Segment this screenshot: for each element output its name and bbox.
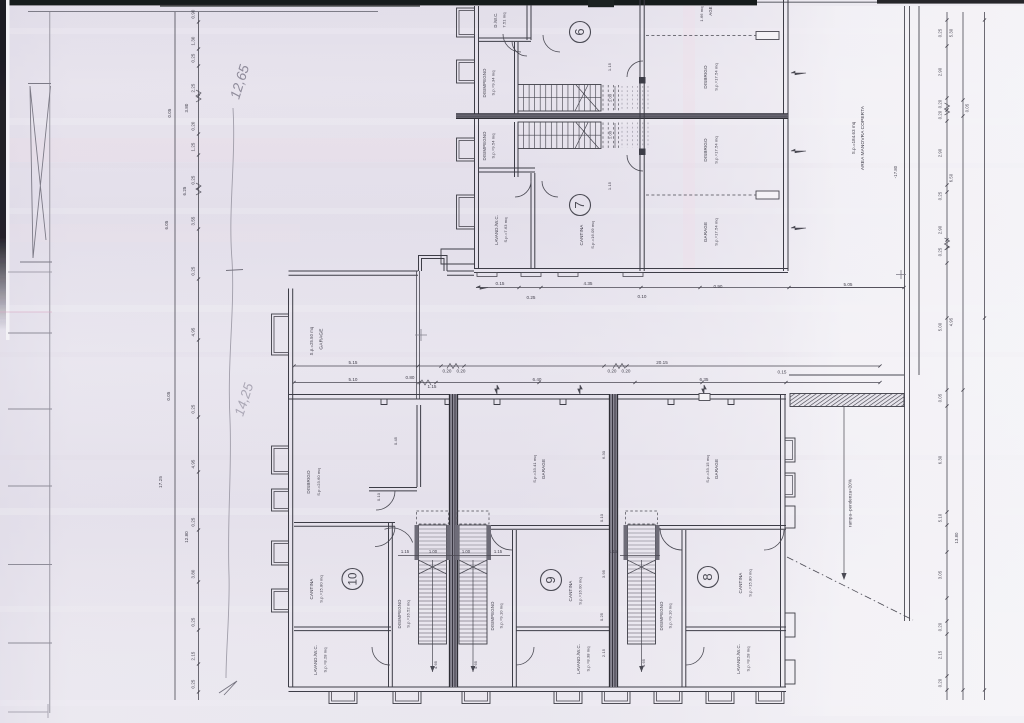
- svg-text:DISBRIGO: DISBRIGO: [703, 138, 708, 162]
- svg-text:5.05: 5.05: [844, 282, 853, 287]
- svg-text:0.05: 0.05: [167, 108, 172, 117]
- svg-text:0.20: 0.20: [622, 369, 631, 374]
- svg-text:0.25: 0.25: [191, 404, 196, 413]
- svg-text:3.80: 3.80: [191, 569, 196, 578]
- svg-text:rampa--pendenza<20%: rampa--pendenza<20%: [848, 479, 853, 527]
- svg-text:12.80: 12.80: [184, 531, 189, 543]
- svg-text:S.p.=15.80 mq: S.p.=15.80 mq: [319, 575, 324, 602]
- svg-text:0.25: 0.25: [938, 191, 943, 200]
- svg-text:6.50: 6.50: [949, 173, 954, 182]
- svg-text:S.p.=9.34 mq: S.p.=9.34 mq: [491, 70, 496, 95]
- svg-text:0.15: 0.15: [496, 281, 505, 286]
- svg-text:0.25: 0.25: [191, 266, 196, 275]
- svg-text:CANTINA: CANTINA: [738, 572, 743, 594]
- svg-text:1.00: 1.00: [608, 130, 613, 139]
- svg-text:4.95: 4.95: [191, 327, 196, 336]
- svg-text:1.00: 1.00: [608, 93, 613, 102]
- svg-text:LAVAND./W.C.: LAVAND./W.C.: [313, 645, 318, 675]
- svg-text:S.p.=8.28 mq: S.p.=8.28 mq: [746, 646, 751, 671]
- svg-text:13.80: 13.80: [954, 532, 959, 544]
- svg-text:S.p.=184.63 mq: S.p.=184.63 mq: [851, 121, 856, 154]
- svg-text:DISIMPEGNO: DISIMPEGNO: [397, 599, 402, 629]
- svg-text:DISIMPEGNO: DISIMPEGNO: [482, 68, 487, 98]
- svg-text:6.35: 6.35: [700, 377, 709, 382]
- svg-text:1.15: 1.15: [609, 549, 618, 554]
- svg-text:2.15: 2.15: [191, 651, 196, 660]
- svg-text:0.25: 0.25: [191, 679, 196, 688]
- svg-text:S.p.=17.54 mq: S.p.=17.54 mq: [714, 63, 719, 90]
- svg-text:5.15: 5.15: [349, 360, 358, 365]
- svg-text:17.25: 17.25: [158, 476, 163, 488]
- svg-text:0.15: 0.15: [778, 370, 787, 375]
- svg-text:4.65: 4.65: [641, 658, 646, 667]
- svg-text:DISIMPEGNO: DISIMPEGNO: [490, 601, 495, 631]
- svg-text:0.20: 0.20: [938, 622, 943, 631]
- svg-text:LAVAND./W.C.: LAVAND./W.C.: [736, 644, 741, 674]
- svg-text:AREA MANOVRA COPERTA: AREA MANOVRA COPERTA: [860, 105, 866, 170]
- svg-text:2.25: 2.25: [191, 83, 196, 92]
- svg-text:S.p.=23.60 mq: S.p.=23.60 mq: [316, 468, 321, 495]
- svg-text:1.15: 1.15: [607, 62, 612, 71]
- svg-text:3.55: 3.55: [191, 216, 196, 225]
- svg-text:4.95: 4.95: [191, 459, 196, 468]
- svg-text:20.15: 20.15: [656, 360, 668, 365]
- svg-text:0.25: 0.25: [191, 617, 196, 626]
- svg-text:DISIMPEGNO: DISIMPEGNO: [482, 131, 487, 161]
- svg-text:S.p.=7.63 mq: S.p.=7.63 mq: [503, 217, 508, 242]
- svg-text:0.05: 0.05: [938, 393, 943, 402]
- svg-text:0.25: 0.25: [599, 612, 604, 621]
- svg-text:D./W.C.: D./W.C.: [493, 12, 498, 27]
- svg-text:2.90: 2.90: [938, 225, 943, 234]
- svg-text:CANTINA: CANTINA: [309, 578, 314, 600]
- svg-text:5.10: 5.10: [349, 377, 358, 382]
- svg-text:0.05: 0.05: [965, 103, 970, 112]
- svg-text:0.90: 0.90: [191, 9, 196, 18]
- svg-text:3.05: 3.05: [938, 570, 943, 579]
- svg-text:2.15: 2.15: [938, 650, 943, 659]
- svg-text:S.p.=8.38 mq: S.p.=8.38 mq: [586, 646, 591, 671]
- svg-text:GARAGE: GARAGE: [703, 222, 708, 242]
- svg-text:S.p.=33.15 mq: S.p.=33.15 mq: [705, 455, 710, 482]
- svg-text:DISBRIGO: DISBRIGO: [703, 65, 708, 89]
- svg-text:LAVAND./W.C.: LAVAND./W.C.: [576, 644, 581, 674]
- svg-text:0.20: 0.20: [191, 121, 196, 130]
- svg-text:1.15: 1.15: [428, 384, 437, 389]
- svg-text:S.p.=15.80 mq: S.p.=15.80 mq: [748, 569, 753, 596]
- svg-text:10: 10: [348, 573, 360, 586]
- svg-text:4.65: 4.65: [473, 660, 478, 669]
- svg-text:0.20: 0.20: [938, 678, 943, 687]
- svg-text:6.25: 6.25: [182, 186, 187, 195]
- svg-text:0.25: 0.25: [191, 517, 196, 526]
- svg-text:2.90: 2.90: [938, 148, 943, 157]
- svg-text:4.35: 4.35: [584, 281, 593, 286]
- svg-text:8: 8: [700, 573, 715, 580]
- svg-text:1.30: 1.30: [191, 36, 196, 45]
- svg-text:0.10: 0.10: [638, 294, 647, 299]
- svg-text:S.p.=16.09 mq: S.p.=16.09 mq: [590, 221, 595, 248]
- svg-text:0.45: 0.45: [393, 436, 398, 445]
- svg-text:5.10: 5.10: [938, 513, 943, 522]
- svg-text:6.30: 6.30: [601, 450, 606, 459]
- svg-text:6: 6: [572, 28, 587, 35]
- svg-text:9: 9: [543, 576, 558, 583]
- svg-text:3.80: 3.80: [184, 103, 189, 112]
- svg-text:1.00: 1.00: [462, 549, 471, 554]
- svg-text:3.95: 3.95: [601, 569, 606, 578]
- svg-text:S.p.=16.00 mq: S.p.=16.00 mq: [578, 577, 583, 604]
- svg-text:S.p.=9.10 mq: S.p.=9.10 mq: [668, 603, 673, 628]
- svg-text:DISIMPEGNO: DISIMPEGNO: [659, 601, 664, 631]
- svg-text:0.90: 0.90: [714, 284, 723, 289]
- svg-text:1.25: 1.25: [191, 142, 196, 151]
- svg-text:S.p.=16.52 mq: S.p.=16.52 mq: [406, 600, 411, 627]
- svg-text:S.p.=9.54 mq: S.p.=9.54 mq: [491, 133, 496, 158]
- svg-text:0.20: 0.20: [938, 110, 943, 119]
- svg-text:S.p.=8.28 mq: S.p.=8.28 mq: [323, 647, 328, 672]
- svg-text:0.25: 0.25: [938, 28, 943, 37]
- svg-text:1.00: 1.00: [429, 549, 438, 554]
- svg-text:0.25: 0.25: [938, 247, 943, 256]
- svg-text:0.10: 0.10: [599, 513, 604, 522]
- svg-text:CANTINA: CANTINA: [579, 224, 584, 246]
- svg-text:GARAGE: GARAGE: [319, 328, 325, 349]
- svg-text:2.90: 2.90: [938, 67, 943, 76]
- svg-text:GARAGE: GARAGE: [541, 459, 546, 479]
- svg-text:S.p.=17.54 mq: S.p.=17.54 mq: [714, 218, 719, 245]
- svg-text:7.51 mq: 7.51 mq: [502, 12, 507, 27]
- svg-text:1.15: 1.15: [494, 549, 503, 554]
- svg-text:S.p.=9.10 mq: S.p.=9.10 mq: [499, 603, 504, 628]
- svg-text:6.30: 6.30: [938, 455, 943, 464]
- svg-text:1.15: 1.15: [401, 549, 410, 554]
- svg-text:5.30: 5.30: [949, 28, 954, 37]
- svg-text:S.p.=25.50 mq: S.p.=25.50 mq: [309, 326, 314, 355]
- svg-text:0.20: 0.20: [443, 369, 452, 374]
- svg-text:5.00: 5.00: [938, 322, 943, 331]
- svg-text:0.25: 0.25: [527, 295, 536, 300]
- svg-text:7: 7: [572, 201, 587, 208]
- svg-text:LAVAND./W.C.: LAVAND./W.C.: [494, 215, 499, 245]
- svg-text:0.20: 0.20: [608, 369, 617, 374]
- svg-text:0.20: 0.20: [938, 99, 943, 108]
- svg-text:4.65: 4.65: [433, 660, 438, 669]
- svg-text:S.p.=17.54 mq: S.p.=17.54 mq: [714, 136, 719, 163]
- svg-text:0.25: 0.25: [191, 53, 196, 62]
- svg-text:0.20: 0.20: [457, 369, 466, 374]
- svg-text:DISBRIGO: DISBRIGO: [306, 470, 311, 494]
- svg-text:0.80: 0.80: [406, 375, 415, 380]
- svg-text:GARAGE: GARAGE: [714, 459, 719, 479]
- svg-text:6.05: 6.05: [164, 220, 169, 229]
- svg-text:0.05: 0.05: [166, 391, 171, 400]
- svg-text:0.10: 0.10: [376, 492, 381, 501]
- svg-text:2.15: 2.15: [601, 648, 606, 657]
- svg-text:1.15: 1.15: [607, 181, 612, 190]
- svg-text:AGE: AGE: [708, 6, 713, 15]
- svg-text:4.95: 4.95: [949, 317, 954, 326]
- svg-text:S.p.=33.41 mq: S.p.=33.41 mq: [532, 455, 537, 482]
- svg-text:0.25: 0.25: [191, 175, 196, 184]
- svg-text:1.66 mq: 1.66 mq: [699, 6, 704, 21]
- svg-text:CANTINA: CANTINA: [568, 580, 573, 602]
- svg-text:-17.80: -17.80: [893, 165, 898, 178]
